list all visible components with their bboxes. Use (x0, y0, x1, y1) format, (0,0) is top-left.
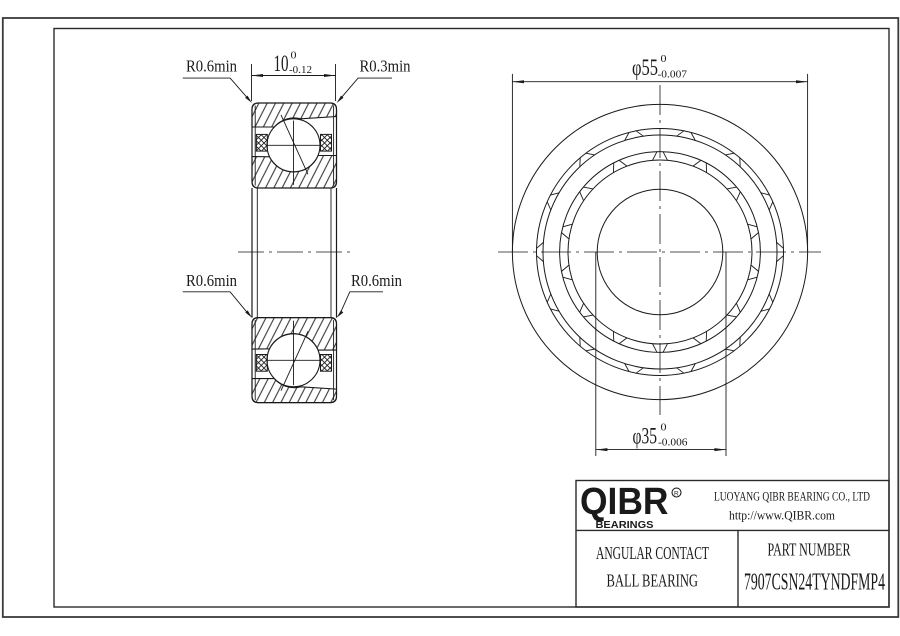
svg-text:R0.6min: R0.6min (186, 271, 237, 290)
svg-text:R0.6min: R0.6min (351, 271, 402, 290)
svg-text:QIBR: QIBR (580, 481, 669, 523)
svg-text:0: 0 (661, 422, 668, 434)
svg-text:ANGULAR CONTACT: ANGULAR CONTACT (596, 543, 709, 563)
svg-text:R0.6min: R0.6min (186, 57, 237, 76)
svg-text:PART NUMBER: PART NUMBER (768, 540, 851, 560)
svg-text:R: R (674, 491, 679, 498)
svg-text:0: 0 (291, 50, 298, 62)
svg-text:http://www.QIBR.com: http://www.QIBR.com (729, 508, 835, 523)
svg-text:φ55: φ55 (632, 55, 658, 81)
svg-text:-0.007: -0.007 (658, 69, 688, 81)
svg-text:10: 10 (274, 51, 289, 77)
svg-text:R0.3min: R0.3min (360, 57, 411, 76)
svg-text:BALL BEARING: BALL BEARING (607, 571, 699, 591)
svg-text:0: 0 (661, 53, 668, 65)
svg-text:φ35: φ35 (633, 424, 658, 450)
svg-text:BEARINGS: BEARINGS (596, 520, 654, 531)
svg-text:LUOYANG QIBR BEARING CO., LTD: LUOYANG QIBR BEARING CO., LTD (714, 490, 870, 504)
svg-text:7907CSN24TYNDFMP4: 7907CSN24TYNDFMP4 (744, 570, 885, 596)
svg-text:-0.006: -0.006 (658, 437, 688, 449)
svg-text:-0.12: -0.12 (289, 64, 312, 76)
